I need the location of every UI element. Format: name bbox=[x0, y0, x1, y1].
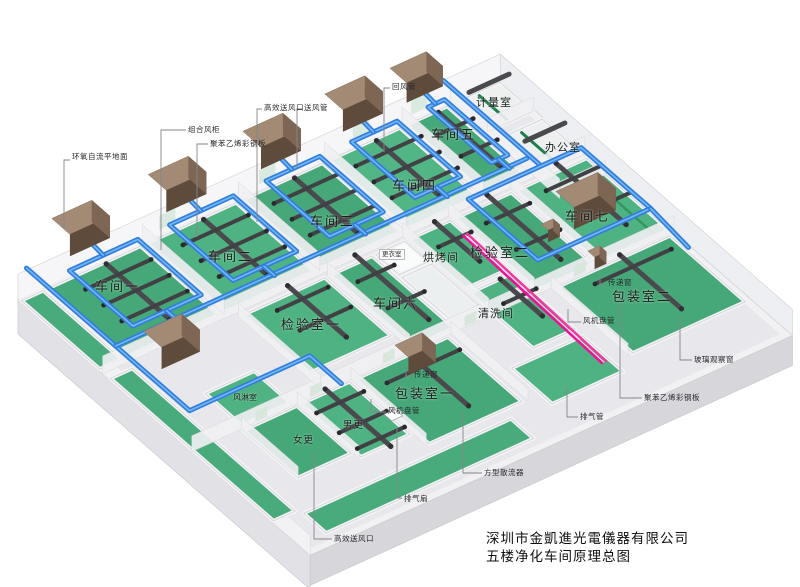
room-label-men-change: 男更 bbox=[343, 417, 364, 431]
title-block: 深圳市金凱進光電儀器有限公司 五楼净化车间原理总图 bbox=[486, 530, 689, 566]
cleanroom-isometric-diagram: 车间一 车间二 车间三 车间四 车间五 车间六 车间七 检验室一 检验室二 烘烤… bbox=[0, 0, 800, 587]
callout-supply-duct: 送风管 bbox=[304, 102, 328, 113]
room-label-packing2: 包装室二 bbox=[612, 286, 672, 305]
room-label-office: 办公室 bbox=[545, 139, 581, 155]
callout-square-diffuser: 方型散流器 bbox=[484, 467, 524, 478]
callout-epoxy-floor: 环氧自流平地面 bbox=[72, 151, 128, 162]
drawing-title: 五楼净化车间原理总图 bbox=[486, 548, 689, 566]
callout-exhaust-pipe: 排气管 bbox=[580, 411, 604, 422]
callout-transfer-window-2: 传递窗 bbox=[608, 277, 632, 288]
room-label-workshop1: 车间一 bbox=[95, 276, 140, 295]
room-label-workshop4: 车间四 bbox=[392, 175, 437, 194]
room-label-metering: 计量室 bbox=[476, 94, 512, 110]
room-label-dressing: 更衣室 bbox=[379, 249, 405, 260]
callout-combined-ahu: 组合风柜 bbox=[188, 124, 220, 135]
room-label-women-change: 女更 bbox=[293, 432, 314, 446]
callout-glass-window: 玻璃观察窗 bbox=[694, 354, 734, 365]
room-label-workshop3: 车间三 bbox=[310, 211, 355, 230]
callout-hepa-outlet-top: 高效送风口 bbox=[264, 102, 304, 113]
callout-steel-panel-right: 聚苯乙烯彩钢板 bbox=[644, 392, 700, 403]
room-label-workshop5: 车间五 bbox=[431, 124, 476, 143]
room-label-inspection2: 检验室二 bbox=[470, 242, 530, 261]
room-label-packing1: 包装室一 bbox=[395, 383, 455, 402]
callout-transfer-window-1: 传递窗 bbox=[414, 369, 438, 380]
callout-hepa-outlet-bottom: 高效送风口 bbox=[334, 533, 374, 544]
company-name: 深圳市金凱進光電儀器有限公司 bbox=[486, 530, 689, 548]
room-label-workshop6: 车间六 bbox=[373, 293, 418, 312]
callout-fan-coil-2: 风机盘管 bbox=[583, 315, 615, 326]
room-label-air-shower: 风淋室 bbox=[233, 392, 257, 403]
room-label-workshop2: 车间二 bbox=[208, 246, 253, 265]
room-label-baking: 烘烤间 bbox=[423, 249, 459, 265]
callout-return-duct: 回风管 bbox=[392, 81, 416, 92]
room-label-cleaning: 清洗间 bbox=[478, 305, 514, 321]
callout-exhaust-fan: 排气扇 bbox=[404, 493, 428, 504]
room-label-inspection1: 检验室一 bbox=[281, 314, 341, 333]
room-label-workshop7: 车间七 bbox=[565, 206, 610, 225]
callout-steel-panel-left: 聚苯乙烯彩钢板 bbox=[210, 138, 266, 149]
callout-fan-coil-1: 风机盘管 bbox=[388, 405, 420, 416]
